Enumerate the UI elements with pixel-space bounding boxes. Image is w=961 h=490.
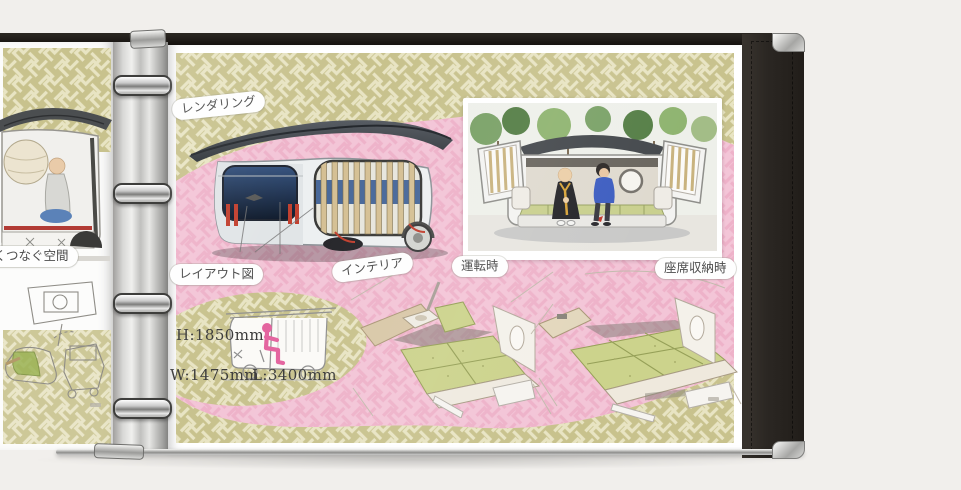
green-seat-pad bbox=[13, 352, 40, 376]
binder-ring-2 bbox=[113, 183, 172, 204]
seated-figure-legs bbox=[40, 209, 72, 223]
mechanism-top-cap bbox=[130, 29, 167, 49]
driving-label-text: 運転時 bbox=[461, 258, 499, 273]
binder-cover bbox=[742, 34, 804, 458]
tatami-floor bbox=[520, 205, 664, 215]
red-floor-line bbox=[4, 226, 92, 230]
binder-bottom-edge bbox=[56, 449, 804, 455]
rendering-roof bbox=[189, 120, 453, 162]
lifestyle-illustration bbox=[468, 103, 717, 251]
binder-ring-1 bbox=[113, 75, 172, 96]
driving-label-pill: 運転時 bbox=[452, 256, 508, 277]
dimension-length: L:3400mm bbox=[252, 366, 337, 384]
console-sketch bbox=[28, 282, 96, 324]
bamboo-lamp bbox=[4, 140, 48, 184]
chrome-corner-top bbox=[772, 33, 805, 52]
tiny-print-mark-left bbox=[90, 403, 101, 407]
stowed-label-pill: 座席収納時 bbox=[655, 258, 736, 279]
sketch-roof bbox=[0, 108, 112, 132]
left-page-seat-sketches bbox=[0, 280, 116, 445]
cover-stitching bbox=[751, 41, 793, 451]
left-page-vehicle-sketch bbox=[0, 86, 116, 266]
chrome-corner-bottom bbox=[772, 441, 805, 459]
layout-label-text: レイアウト図 bbox=[179, 266, 254, 281]
design-board-page: レンダリング レイアウト図 インテリア 運転時 座席収納時 H:1850mm W… bbox=[168, 45, 742, 450]
dimension-height: H:1850mm bbox=[176, 326, 264, 344]
binder-ring-3 bbox=[113, 293, 172, 314]
round-window bbox=[620, 170, 642, 192]
left-page-caption-pill: るくつなぐ空間 bbox=[0, 246, 78, 267]
left-page: るくつなぐ空間 bbox=[0, 42, 113, 450]
stowed-label-text: 座席収納時 bbox=[664, 260, 727, 275]
seated-figure-head bbox=[49, 158, 65, 174]
tiny-print-mark-right bbox=[708, 397, 719, 401]
vehicle-rendering bbox=[185, 106, 460, 264]
layout-label-pill: レイアウト図 bbox=[170, 264, 263, 285]
lifestyle-illustration-card bbox=[463, 98, 722, 260]
mechanism-bottom-cap bbox=[94, 443, 144, 460]
left-page-caption-text: るくつなぐ空間 bbox=[0, 248, 69, 263]
binder-ring-4 bbox=[113, 398, 172, 419]
binder-spine bbox=[113, 42, 168, 451]
dimension-width: W:1475mm bbox=[170, 366, 259, 384]
photo-of-open-binder: るくつなぐ空間 bbox=[0, 0, 961, 490]
window-slats bbox=[321, 162, 415, 234]
